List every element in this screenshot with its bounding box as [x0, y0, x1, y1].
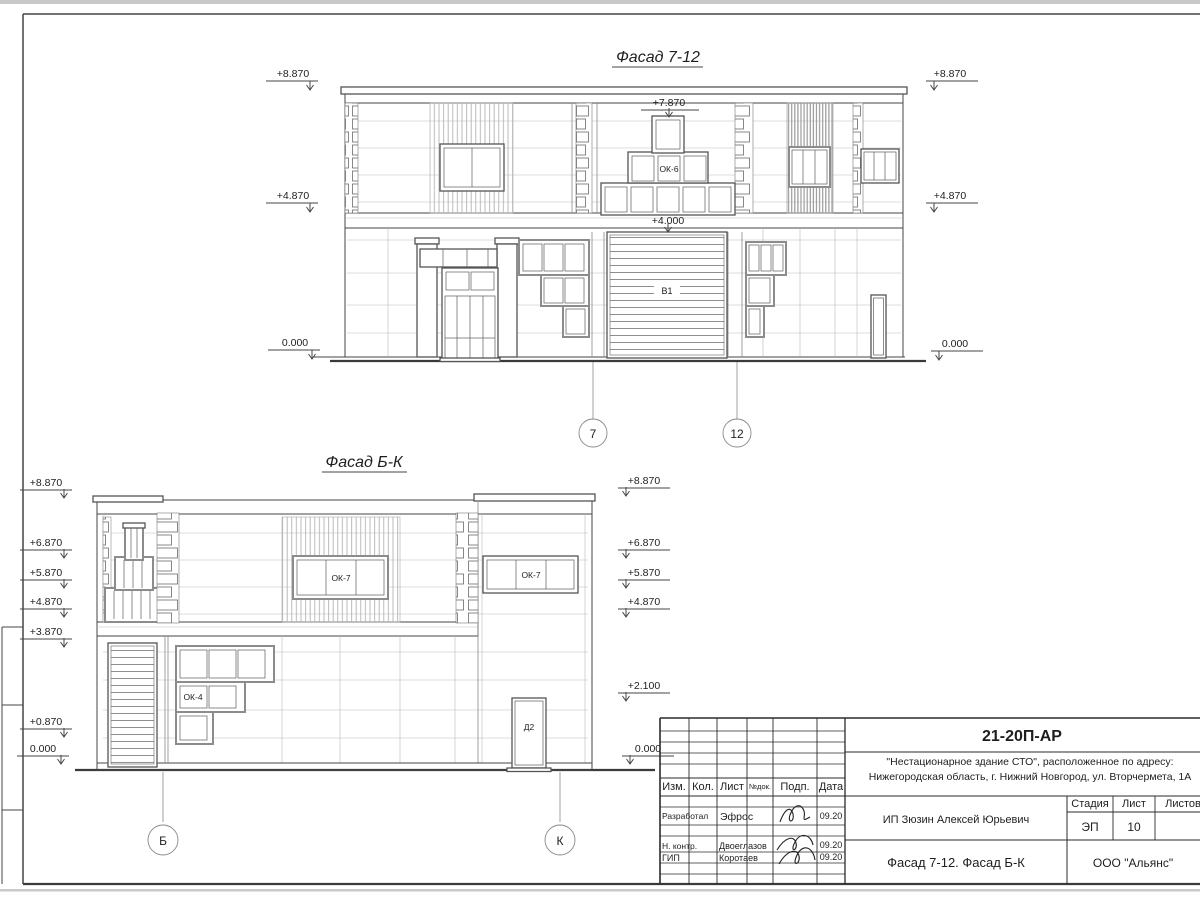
narrow-pier	[871, 295, 886, 358]
sheets-label: Листов	[1165, 798, 1200, 810]
elevation-marks-left-bk: +8.870 +6.870 +5.870 +4.870 +3.870 +0.87…	[17, 477, 72, 764]
stepped-window-right	[746, 242, 786, 337]
title-block: Изм. Кол. Лист №док. Подп. Дата Разработ…	[660, 718, 1200, 884]
slat-panel-left	[430, 103, 513, 213]
svg-text:+2.100: +2.100	[628, 680, 661, 692]
elevation-mark-gate: +4.000	[640, 215, 698, 232]
window-ok4-label: ОК-4	[183, 692, 202, 702]
door-d2: Д2	[507, 698, 551, 772]
window-ok4-stepped: ОК-4	[176, 646, 274, 744]
elevation-marks-right-bk: +8.870 +6.870 +5.870 +4.870 +2.100 0.000	[618, 475, 674, 764]
doc-code: 21-20П-АР	[982, 728, 1062, 745]
svg-text:+3.870: +3.870	[30, 626, 63, 638]
svg-text:+4.870: +4.870	[628, 596, 661, 608]
gate-b1-label: В1	[661, 286, 672, 296]
sheet-label: Лист	[1122, 798, 1146, 810]
row-name-2: Коротаев	[719, 853, 758, 863]
door-d2-label: Д2	[524, 722, 535, 732]
slat-panel-right	[787, 103, 833, 213]
address-line-1: "Нестационарное здание СТО", расположенн…	[886, 756, 1173, 768]
col-izm: Изм.	[662, 781, 686, 793]
window-ok7-1-label: ОК-7	[331, 573, 350, 583]
signature-0	[780, 806, 810, 822]
svg-text:0.000: 0.000	[282, 337, 308, 349]
stage-label: Стадия	[1071, 798, 1109, 810]
svg-text:+4.870: +4.870	[30, 596, 63, 608]
svg-text:К: К	[557, 834, 564, 848]
facade-drawing-svg: Фасад 7-12	[0, 0, 1200, 900]
svg-text:7: 7	[590, 427, 597, 441]
entrance-door	[440, 268, 500, 362]
window-3pane-dark	[789, 147, 830, 187]
elevation-mark-ok6: +7.870	[641, 97, 699, 117]
elevation-marks-right: +8.870 +4.870 0.000	[926, 68, 983, 360]
col-kol: Кол.	[692, 781, 714, 793]
address-line-2: Нижегородская область, г. Нижний Новгоро…	[869, 771, 1192, 783]
svg-text:+6.870: +6.870	[628, 537, 661, 549]
window-ok7-2-label: ОК-7	[521, 570, 540, 580]
svg-text:+8.870: +8.870	[30, 477, 63, 489]
svg-text:0.000: 0.000	[30, 743, 56, 755]
axis-7: 7	[579, 362, 607, 447]
client-name: ИП Зюзин Алексей Юрьевич	[883, 814, 1030, 826]
facade-b-k: Фасад Б-К	[17, 454, 674, 855]
svg-text:+8.870: +8.870	[628, 475, 661, 487]
row-date-0: 09.20	[820, 811, 843, 821]
axis-12: 12	[723, 362, 751, 447]
window-ok6-label: ОК-6	[659, 164, 678, 174]
svg-text:+4.870: +4.870	[277, 190, 310, 202]
window-2pane	[440, 144, 504, 191]
svg-text:+7.870: +7.870	[653, 97, 686, 109]
svg-text:0.000: 0.000	[942, 338, 968, 350]
svg-text:Б: Б	[159, 834, 167, 848]
sheet-number: 10	[1127, 820, 1141, 834]
svg-text:+6.870: +6.870	[30, 537, 63, 549]
col-data: Дата	[819, 781, 844, 793]
company-name: ООО "Альянс"	[1093, 856, 1173, 870]
svg-text:+5.870: +5.870	[30, 567, 63, 579]
col-ndoc: №док.	[749, 782, 771, 791]
axis-b: Б	[148, 772, 178, 855]
row-name-0: Эфрос	[720, 811, 753, 823]
row-date-2: 09.20	[820, 852, 843, 862]
stage-value: ЭП	[1081, 820, 1098, 834]
interfloor-band-bk	[97, 622, 478, 636]
row-role-1: Н. контр.	[662, 841, 697, 851]
elevation-marks-left: +8.870 +4.870 0.000	[266, 68, 320, 359]
slat-panel-bk: ОК-7	[282, 517, 400, 622]
facade-7-12-title: Фасад 7-12	[616, 49, 700, 66]
col-list: Лист	[720, 781, 744, 793]
roll-up-door	[108, 636, 168, 767]
sign-band	[420, 249, 497, 267]
drawing-sheet: Фасад 7-12	[0, 0, 1200, 900]
svg-text:+8.870: +8.870	[277, 68, 310, 80]
col-podp: Подп.	[780, 781, 809, 793]
svg-text:12: 12	[730, 427, 744, 441]
row-date-1: 09.20	[820, 840, 843, 850]
row-role-2: ГИП	[662, 853, 680, 863]
svg-text:+8.870: +8.870	[934, 68, 967, 80]
svg-text:0.000: 0.000	[635, 743, 661, 755]
sectional-gate-b1: В1 +4.000	[607, 215, 727, 358]
axis-k: К	[545, 772, 575, 855]
facade-b-k-title: Фасад Б-К	[326, 454, 405, 471]
entrance-portal	[415, 238, 519, 362]
sheet-title: Фасад 7-12. Фасад Б-К	[887, 855, 1025, 870]
window-ok7-1: ОК-7	[293, 556, 388, 599]
facade-7-12: Фасад 7-12	[266, 49, 983, 447]
parapet-cap	[341, 87, 907, 94]
signature-2	[779, 848, 815, 864]
window-3pane-corner	[861, 149, 899, 183]
svg-text:+5.870: +5.870	[628, 567, 661, 579]
svg-text:+0.870: +0.870	[30, 716, 63, 728]
svg-text:+4.870: +4.870	[934, 190, 967, 202]
stepped-window-left	[519, 240, 589, 337]
window-ok7-2: ОК-7	[483, 556, 578, 593]
row-name-1: Двоеглазов	[719, 841, 767, 851]
row-role-0: Разработал	[662, 811, 708, 821]
window-ok6-pyramid: ОК-6 +7.870	[601, 97, 735, 215]
